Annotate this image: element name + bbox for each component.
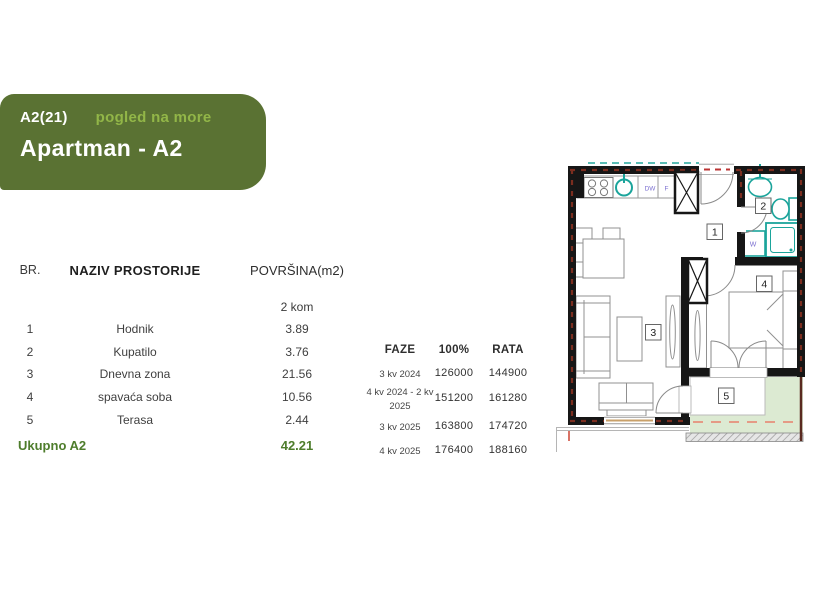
table-row: 3 Dnevna zona 21.56	[0, 367, 384, 390]
row-number: 5	[0, 413, 60, 427]
room-area: 10.56	[210, 390, 384, 404]
unit-count-subheader: 2 kom	[210, 300, 384, 314]
wardrobes	[675, 172, 707, 303]
window	[604, 416, 655, 426]
room-label-living: 3	[650, 327, 656, 339]
column-header-area: POVRŠINA(m2)	[210, 263, 384, 278]
phase-period: 3 kv 2025	[379, 422, 420, 433]
dining-table	[583, 239, 624, 278]
room-name: Dnevna zona	[60, 367, 210, 381]
phase-price-rata: 144900	[489, 367, 528, 379]
tv-screen	[670, 305, 676, 359]
row-number: 2	[0, 345, 60, 359]
room-label-hall: 1	[712, 227, 718, 239]
column-header-faze: FAZE	[385, 344, 416, 356]
terrace-railing	[686, 433, 803, 442]
brochure-page: A2(21) pogled na more Apartman - A2 BR. …	[0, 0, 820, 600]
coffee-table	[617, 317, 642, 361]
header-card: A2(21) pogled na more Apartman - A2	[0, 94, 266, 190]
unit-code: A2(21)	[20, 109, 68, 126]
table-row: 5 Terasa 2.44	[0, 413, 384, 436]
total-area-value: 42.21	[210, 438, 384, 453]
exterior-sill-lines	[556, 427, 689, 452]
kitchen: DW F	[577, 170, 676, 198]
room-area: 3.89	[210, 322, 384, 336]
header-top-row: A2(21) pogled na more	[20, 109, 246, 126]
room-label-bath: 2	[760, 201, 766, 213]
phase-period: 4 kv 2025	[379, 446, 420, 457]
column-header-100: 100%	[439, 344, 470, 356]
phase-price-rata: 188160	[489, 444, 528, 456]
view-label: pogled na more	[96, 109, 212, 126]
room-name: Kupatilo	[60, 345, 210, 359]
toilet	[772, 199, 789, 219]
total-label: Ukupno A2	[18, 438, 86, 453]
column-header-name: NAZIV PROSTORIJE	[60, 263, 210, 278]
row-number: 1	[0, 322, 60, 336]
row-number: 3	[0, 367, 60, 381]
phase-period: 4 kv 2024 - 2 kv 2025	[366, 386, 434, 415]
dishwasher-label: DW	[645, 186, 657, 193]
living-room-furniture	[575, 228, 680, 416]
fridge-label: F	[665, 186, 669, 193]
mirror	[695, 311, 700, 361]
room-name: spavaća soba	[60, 390, 210, 404]
phase-price-full: 163800	[435, 420, 474, 432]
room-area: 3.76	[210, 345, 384, 359]
total-row: Ukupno A2 42.21	[0, 438, 384, 453]
phase-price-full: 151200	[435, 392, 474, 404]
table-row: 2 Kupatilo 3.76	[0, 345, 384, 368]
washer-label: W	[750, 242, 757, 249]
row-number: 4	[0, 390, 60, 404]
room-name: Terasa	[60, 413, 210, 427]
room-area: 2.44	[210, 413, 384, 427]
column-header-br: BR.	[0, 263, 60, 278]
entrance-door	[699, 164, 734, 205]
terrace-area	[686, 377, 803, 442]
living-terrace-door	[656, 386, 691, 413]
phase-price-rata: 161280	[489, 392, 528, 404]
phase-price-full: 126000	[435, 367, 474, 379]
rooms-table-rows: 1 Hodnik 3.89 2 Kupatilo 3.76 3 Dnevna z…	[0, 322, 384, 435]
room-area: 21.56	[210, 367, 384, 381]
phase-period: 3 kv 2024	[379, 369, 420, 380]
table-row: 1 Hodnik 3.89	[0, 322, 384, 345]
room-label-terrace: 5	[723, 391, 729, 403]
phase-price-rata: 174720	[489, 420, 528, 432]
room-label-bedroom: 4	[761, 279, 767, 291]
room-name: Hodnik	[60, 322, 210, 336]
bathroom-sink	[749, 178, 772, 197]
bed	[729, 292, 783, 348]
rooms-table-header: BR. NAZIV PROSTORIJE POVRŠINA(m2)	[0, 263, 384, 278]
column-header-rata: RATA	[492, 344, 523, 356]
page-title: Apartman - A2	[20, 135, 246, 162]
stove	[584, 178, 613, 198]
floor-plan: DW F W	[556, 150, 816, 460]
table-row: 4 spavaća soba 10.56	[0, 390, 384, 413]
phase-price-full: 176400	[435, 444, 474, 456]
